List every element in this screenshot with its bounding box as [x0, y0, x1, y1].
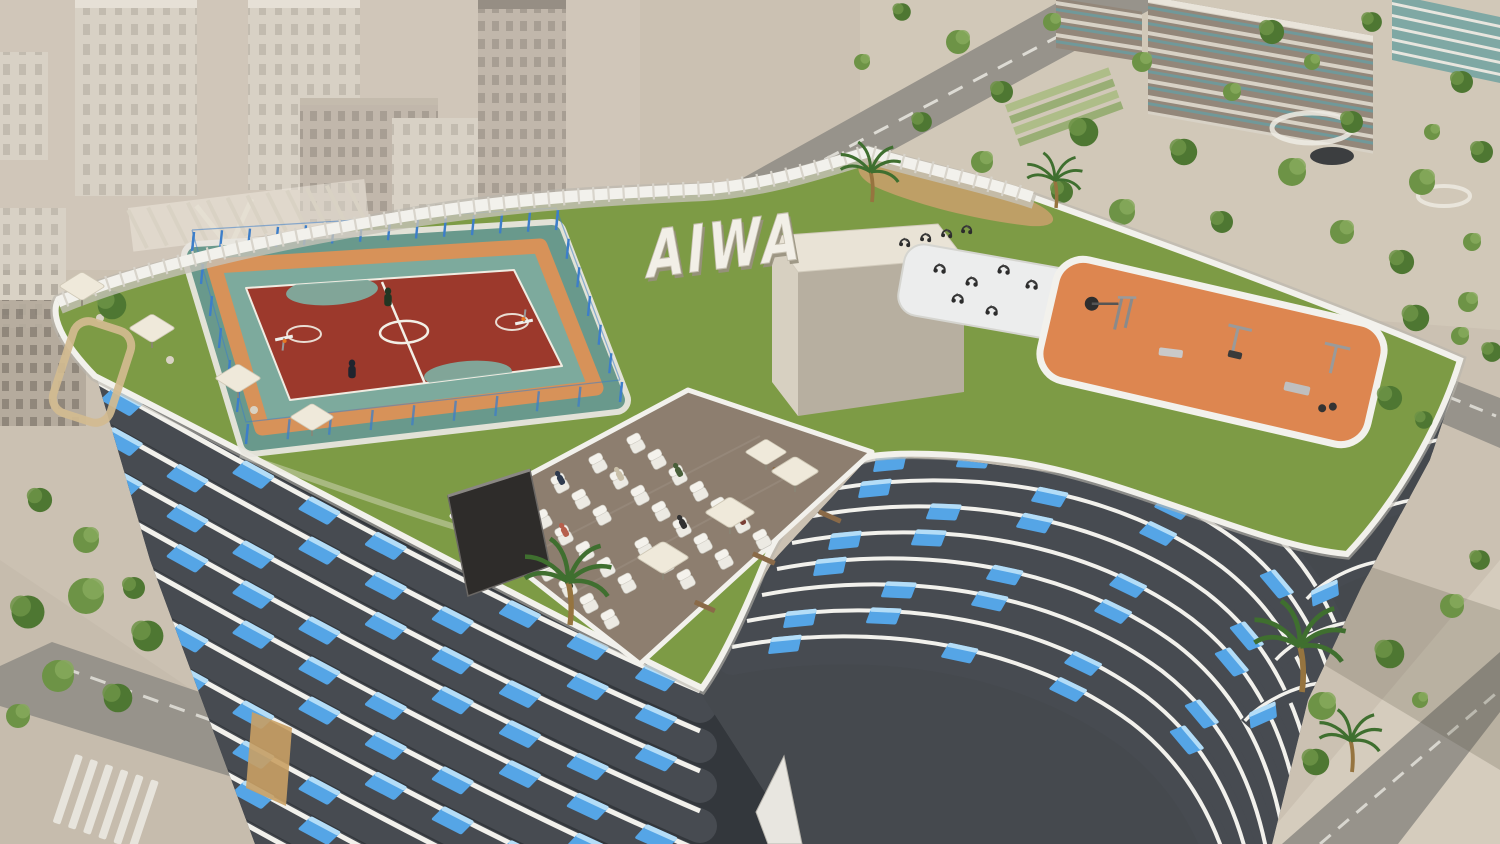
canopy-rib [563, 189, 564, 205]
canopy-rib [593, 187, 594, 203]
park-tree [1458, 292, 1478, 312]
park-tree [1132, 52, 1152, 72]
fountain-pond [1310, 147, 1354, 165]
street-tree [6, 704, 30, 728]
canopy-rib [608, 186, 609, 202]
canopy-rib [683, 182, 684, 198]
terrace-pool [911, 529, 948, 547]
park-tree [1409, 169, 1435, 195]
park-tree [1278, 158, 1306, 186]
park-tree [1223, 83, 1241, 101]
park-tree [971, 151, 993, 173]
terrace-pool [881, 581, 918, 599]
basketball-player [348, 360, 356, 379]
park-tree [1043, 13, 1061, 31]
street-tree [68, 578, 104, 614]
street-tree [73, 527, 99, 553]
basketball-player [384, 288, 392, 307]
canopy-rib [668, 183, 669, 199]
park-tree [1330, 220, 1354, 244]
canopy-rib [548, 191, 549, 207]
park-tree [1424, 124, 1440, 140]
park-tree [1304, 54, 1320, 70]
street-tree [1308, 692, 1336, 720]
terrace-pool [866, 607, 903, 625]
canopy-rib [638, 184, 639, 200]
canopy-rib [653, 183, 654, 199]
street-tree [1440, 594, 1464, 618]
park-tree [854, 54, 870, 70]
street-tree [1451, 327, 1469, 345]
aerial-render-scene: AIWA AIWA Aerial 3D architectural render… [0, 0, 1500, 844]
canopy-rib [533, 192, 535, 208]
canopy-rib [698, 181, 699, 197]
park-tree [1463, 233, 1481, 251]
terrace-pool [926, 503, 963, 521]
street-tree [42, 660, 74, 692]
park-tree [946, 30, 970, 54]
canopy-rib [623, 185, 624, 201]
canopy-rib [713, 180, 714, 196]
street-tree [1412, 692, 1428, 708]
canopy-rib [578, 188, 579, 204]
